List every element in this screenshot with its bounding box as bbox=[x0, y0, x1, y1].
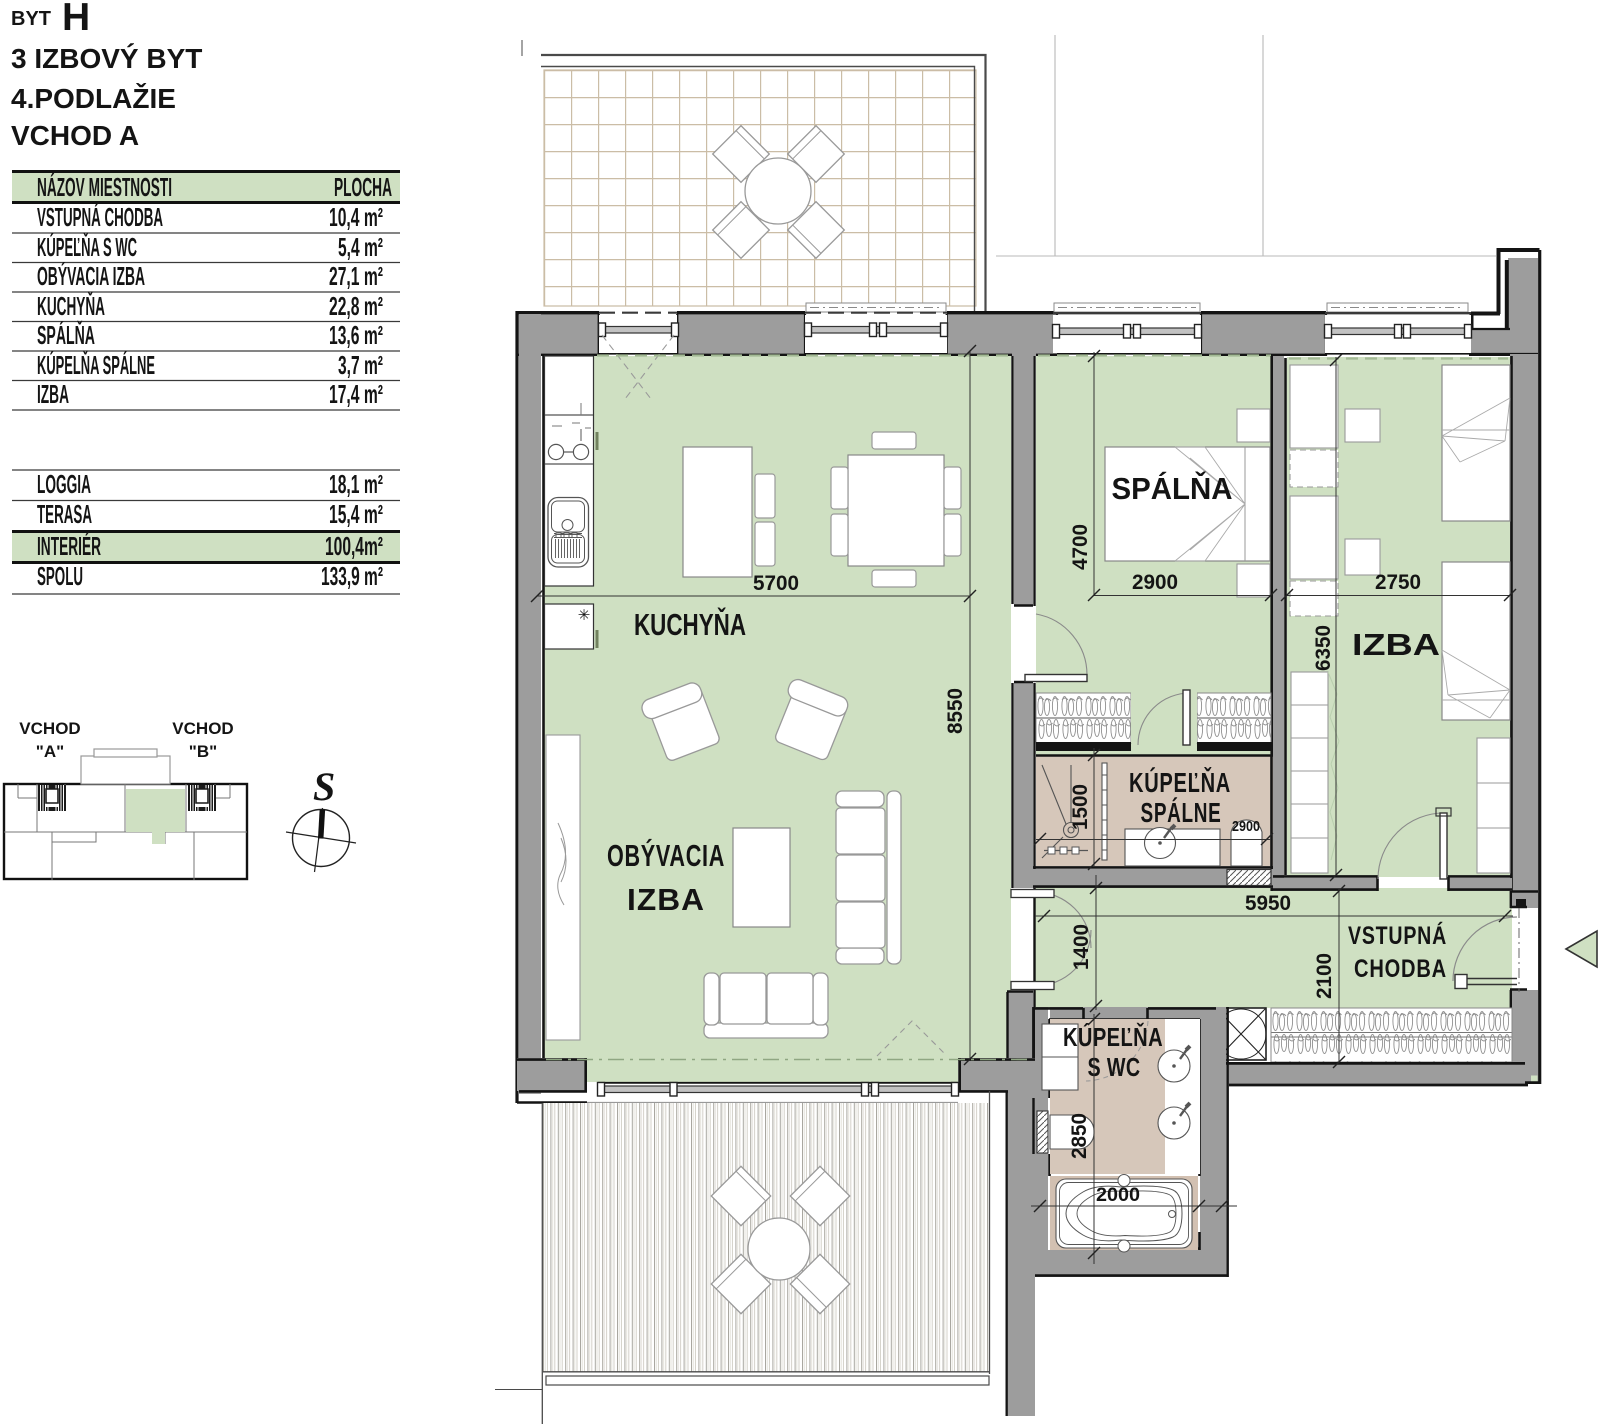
svg-text:4700: 4700 bbox=[1069, 524, 1092, 570]
svg-text:2000: 2000 bbox=[1096, 1185, 1140, 1206]
svg-text:SPOLU: SPOLU bbox=[37, 561, 83, 591]
svg-text:VSTUPNÁ CHODBA: VSTUPNÁ CHODBA bbox=[37, 202, 163, 232]
svg-text:KÚPELŇA SPÁLNE: KÚPELŇA SPÁLNE bbox=[37, 350, 155, 380]
svg-text:INTERIÉR: INTERIÉR bbox=[37, 531, 101, 561]
svg-text:2850: 2850 bbox=[1068, 1113, 1091, 1159]
svg-text:TERASA: TERASA bbox=[37, 499, 92, 529]
svg-text:"A": "A" bbox=[36, 742, 64, 761]
svg-text:✳: ✳ bbox=[578, 607, 591, 624]
svg-text:KÚPEĽŇA S WC: KÚPEĽŇA S WC bbox=[37, 232, 137, 262]
svg-text:OBÝVACIA IZBA: OBÝVACIA IZBA bbox=[37, 261, 145, 291]
svg-text:NÁZOV MIESTNOSTI: NÁZOV MIESTNOSTI bbox=[37, 172, 172, 202]
svg-text:S WC: S WC bbox=[1088, 1052, 1141, 1082]
svg-text:15,4 m²: 15,4 m² bbox=[329, 499, 383, 529]
svg-text:KUCHYŇA: KUCHYŇA bbox=[634, 606, 746, 642]
svg-text:KUCHYŇA: KUCHYŇA bbox=[37, 291, 105, 321]
svg-text:S: S bbox=[313, 764, 335, 809]
svg-text:OBÝVACIA: OBÝVACIA bbox=[607, 838, 725, 873]
svg-text:KÚPEĽŇA: KÚPEĽŇA bbox=[1129, 767, 1231, 798]
svg-text:13,6 m²: 13,6 m² bbox=[329, 320, 383, 350]
svg-text:BYT: BYT bbox=[11, 8, 51, 30]
svg-text:2900: 2900 bbox=[1132, 571, 1178, 594]
svg-text:IZBA: IZBA bbox=[1352, 627, 1440, 662]
svg-text:2900: 2900 bbox=[1232, 818, 1260, 835]
svg-text:1400: 1400 bbox=[1070, 924, 1093, 970]
svg-text:133,9 m²: 133,9 m² bbox=[321, 561, 383, 591]
svg-text:IZBA: IZBA bbox=[627, 882, 705, 917]
svg-text:100,4m²: 100,4m² bbox=[325, 531, 383, 561]
svg-text:3,7 m²: 3,7 m² bbox=[338, 350, 383, 380]
svg-text:KÚPEĽŇA: KÚPEĽŇA bbox=[1063, 1022, 1163, 1052]
svg-text:IZBA: IZBA bbox=[37, 379, 69, 409]
svg-text:22,8 m²: 22,8 m² bbox=[329, 291, 383, 321]
svg-text:17,4 m²: 17,4 m² bbox=[329, 379, 383, 409]
svg-text:CHODBA: CHODBA bbox=[1354, 955, 1447, 983]
svg-text:8550: 8550 bbox=[944, 688, 967, 734]
svg-text:4.PODLAŽIE: 4.PODLAŽIE bbox=[11, 83, 176, 114]
svg-text:2100: 2100 bbox=[1313, 953, 1336, 999]
svg-text:6350: 6350 bbox=[1312, 625, 1335, 671]
svg-text:18,1 m²: 18,1 m² bbox=[329, 469, 383, 499]
svg-text:10,4 m²: 10,4 m² bbox=[329, 202, 383, 232]
svg-text:LOGGIA: LOGGIA bbox=[37, 469, 91, 499]
svg-text:VCHOD: VCHOD bbox=[19, 719, 80, 738]
svg-text:SPÁLNE: SPÁLNE bbox=[1141, 797, 1222, 828]
svg-text:"B": "B" bbox=[189, 742, 217, 761]
svg-text:H: H bbox=[62, 0, 90, 39]
svg-text:VCHOD A: VCHOD A bbox=[11, 120, 139, 151]
svg-text:5,4 m²: 5,4 m² bbox=[338, 232, 383, 262]
svg-text:PLOCHA: PLOCHA bbox=[334, 172, 392, 202]
svg-text:SPÁLŇA: SPÁLŇA bbox=[1112, 470, 1233, 506]
svg-text:SPÁLŇA: SPÁLŇA bbox=[37, 320, 95, 350]
svg-text:5700: 5700 bbox=[753, 572, 799, 595]
svg-text:5950: 5950 bbox=[1245, 892, 1291, 915]
svg-text:VCHOD: VCHOD bbox=[172, 719, 233, 738]
svg-text:VSTUPNÁ: VSTUPNÁ bbox=[1348, 921, 1447, 950]
svg-text:3 IZBOVÝ BYT: 3 IZBOVÝ BYT bbox=[11, 43, 202, 74]
svg-text:2750: 2750 bbox=[1375, 571, 1421, 594]
svg-text:1500: 1500 bbox=[1069, 784, 1092, 830]
svg-text:27,1 m²: 27,1 m² bbox=[329, 261, 383, 291]
